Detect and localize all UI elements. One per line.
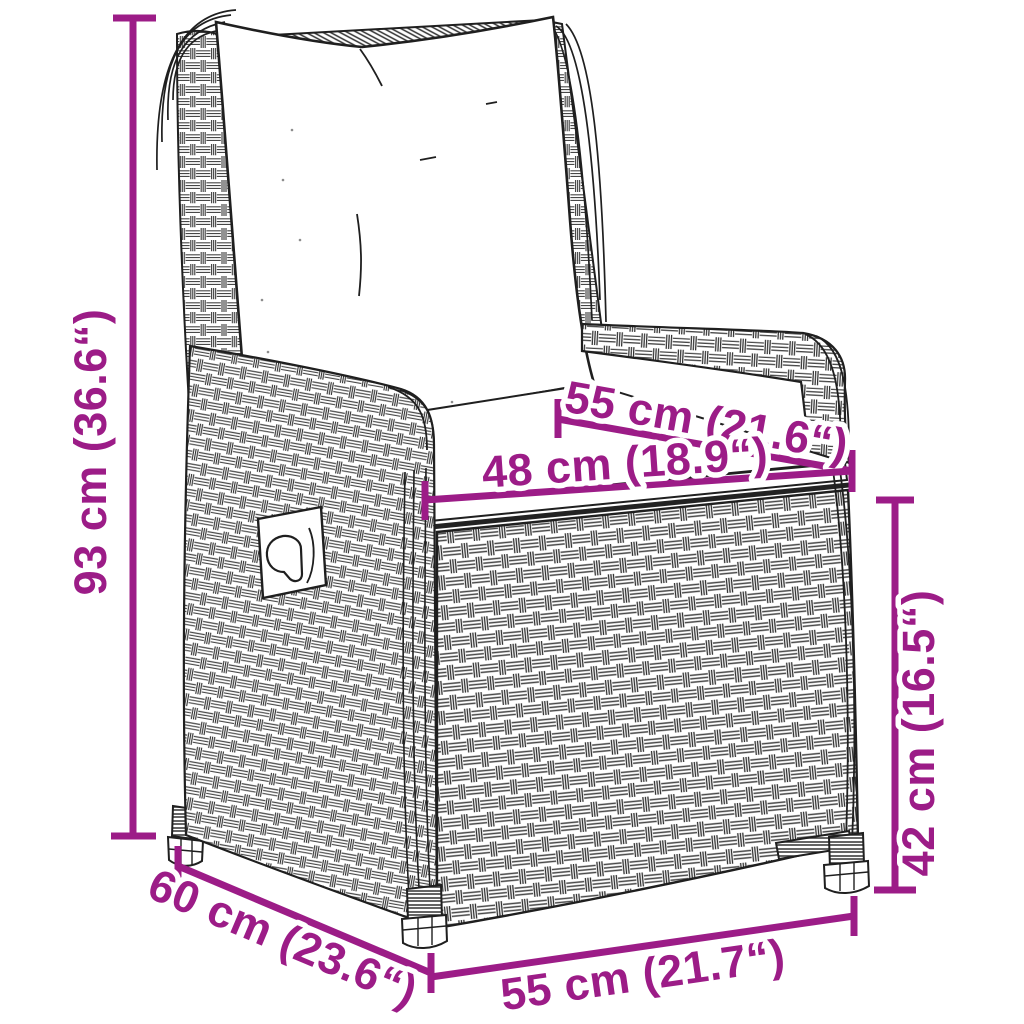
leg-foot bbox=[824, 861, 869, 893]
leg-foot bbox=[402, 915, 447, 948]
dimension-seat-height: 42 cm (16.5“) bbox=[874, 500, 944, 890]
seat-height-label: 42 cm (16.5“) bbox=[893, 590, 944, 877]
left-side-woven-panel bbox=[184, 346, 437, 928]
overall-height-label: 93 cm (36.6“) bbox=[65, 309, 116, 596]
diagram-canvas: 93 cm (36.6“) 55 cm (21.6“) 48 cm (18.9“… bbox=[0, 0, 1024, 1024]
recline-handle bbox=[258, 507, 326, 598]
chair-front-right-leg bbox=[824, 833, 869, 893]
overall-width-label: 55 cm (21.7“) bbox=[497, 929, 788, 1020]
seat-base-box bbox=[437, 490, 858, 928]
product-dimension-figure: 93 cm (36.6“) 55 cm (21.6“) 48 cm (18.9“… bbox=[0, 0, 1024, 1024]
dimension-overall-height: 93 cm (36.6“) bbox=[65, 18, 156, 836]
left-armrest-and-side-panel bbox=[184, 346, 437, 928]
chair-front-left-leg bbox=[402, 885, 447, 948]
